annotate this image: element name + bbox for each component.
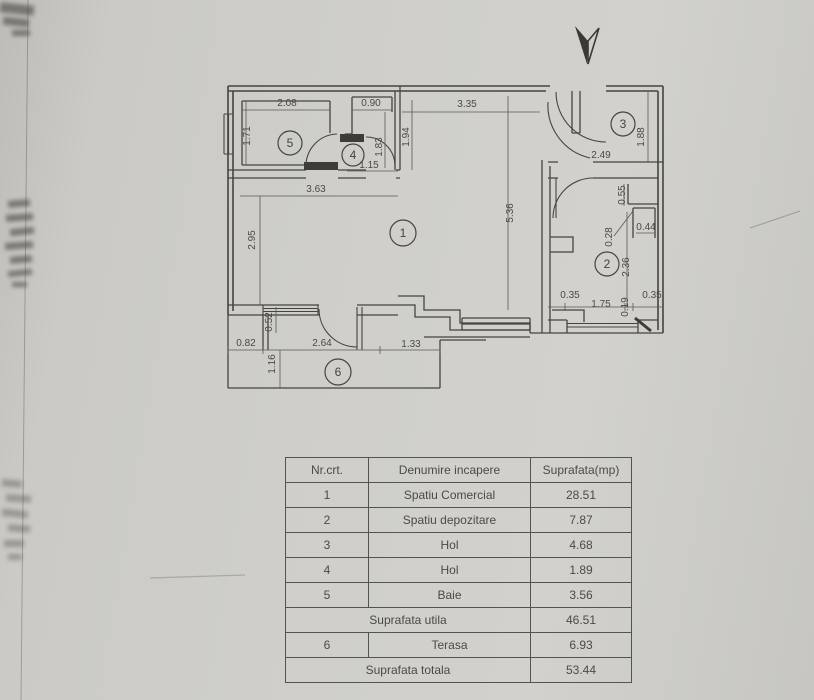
door-leaf [340,134,364,142]
header-suprafata: Suprafata(mp) [531,458,632,483]
dimension-label: 3.63 [306,184,326,195]
row-name: Spatiu depozitare [369,508,531,533]
row-nr: 3 [286,533,369,558]
table-row: Suprafata totala53.44 [286,658,632,683]
table-row: 6Terasa6.93 [286,633,632,658]
row-nr: 5 [286,583,369,608]
table-row: Suprafata utila46.51 [286,608,632,633]
row-area: 53.44 [531,658,632,683]
room-number: 5 [287,136,294,150]
row-nr: 6 [286,633,369,658]
dimension-label: 1.71 [242,126,253,146]
dimension-label: 1.75 [591,299,611,310]
area-table: Nr.crt.Denumire incapereSuprafata(mp)1Sp… [285,457,632,683]
row-area: 3.56 [531,583,632,608]
room-number: 2 [604,257,611,271]
row-name: Spatiu Comercial [369,483,531,508]
scanned-page: 2.080.903.351.153.632.490.440.351.750.35… [0,0,814,700]
dimension-label: 2.95 [247,230,258,250]
dimension-label: 2.64 [312,338,332,349]
table-row: 1Spatiu Comercial28.51 [286,483,632,508]
dimension-label: 0.35 [642,290,662,301]
dimension-label: 1.94 [401,127,412,147]
row-area: 4.68 [531,533,632,558]
row-name: Hol [369,558,531,583]
table-header-row: Nr.crt.Denumire incapereSuprafata(mp) [286,458,632,483]
table-row: 2Spatiu depozitare7.87 [286,508,632,533]
room-number: 4 [350,148,357,162]
dimension-label: 1.88 [636,127,647,147]
row-merged-label: Suprafata utila [286,608,531,633]
dimension-label: 0.44 [636,222,656,233]
dimension-label: 2.49 [591,150,611,161]
row-nr: 1 [286,483,369,508]
room-number: 1 [400,226,407,240]
dimension-label: 0.90 [361,98,381,109]
dimension-label: 2.36 [621,257,632,277]
row-name: Baie [369,583,531,608]
row-name: Terasa [369,633,531,658]
dimension-label: 5.36 [505,203,516,223]
dimension-label: 1.83 [374,137,385,157]
room-number: 3 [620,117,627,131]
north-arrow-icon [575,26,599,64]
row-name: Hol [369,533,531,558]
row-area: 7.87 [531,508,632,533]
row-merged-label: Suprafata totala [286,658,531,683]
dimension-label: 3.35 [457,99,477,110]
table-row: 5Baie3.56 [286,583,632,608]
door-leaf [304,162,338,170]
dimension-label: 2.08 [277,98,297,109]
row-area: 28.51 [531,483,632,508]
dimension-label: 0.52 [264,312,275,332]
door-arcs [304,92,651,350]
row-area: 6.93 [531,633,632,658]
dimension-label: 0.35 [560,290,580,301]
dimension-label: 1.33 [401,339,421,350]
header-denumire: Denumire incapere [369,458,531,483]
row-area: 1.89 [531,558,632,583]
dimension-label: 0.82 [236,338,256,349]
table-row: 3Hol4.68 [286,533,632,558]
row-area: 46.51 [531,608,632,633]
header-nr-crt: Nr.crt. [286,458,369,483]
row-nr: 2 [286,508,369,533]
exterior-walls [228,86,663,333]
dimension-label: 0.28 [604,227,615,247]
dimension-label: 0.19 [620,297,631,317]
dimension-label: 0.55 [617,185,628,205]
row-nr: 4 [286,558,369,583]
room-number: 6 [335,365,342,379]
table-row: 4Hol1.89 [286,558,632,583]
dimension-label: 1.16 [267,354,278,374]
